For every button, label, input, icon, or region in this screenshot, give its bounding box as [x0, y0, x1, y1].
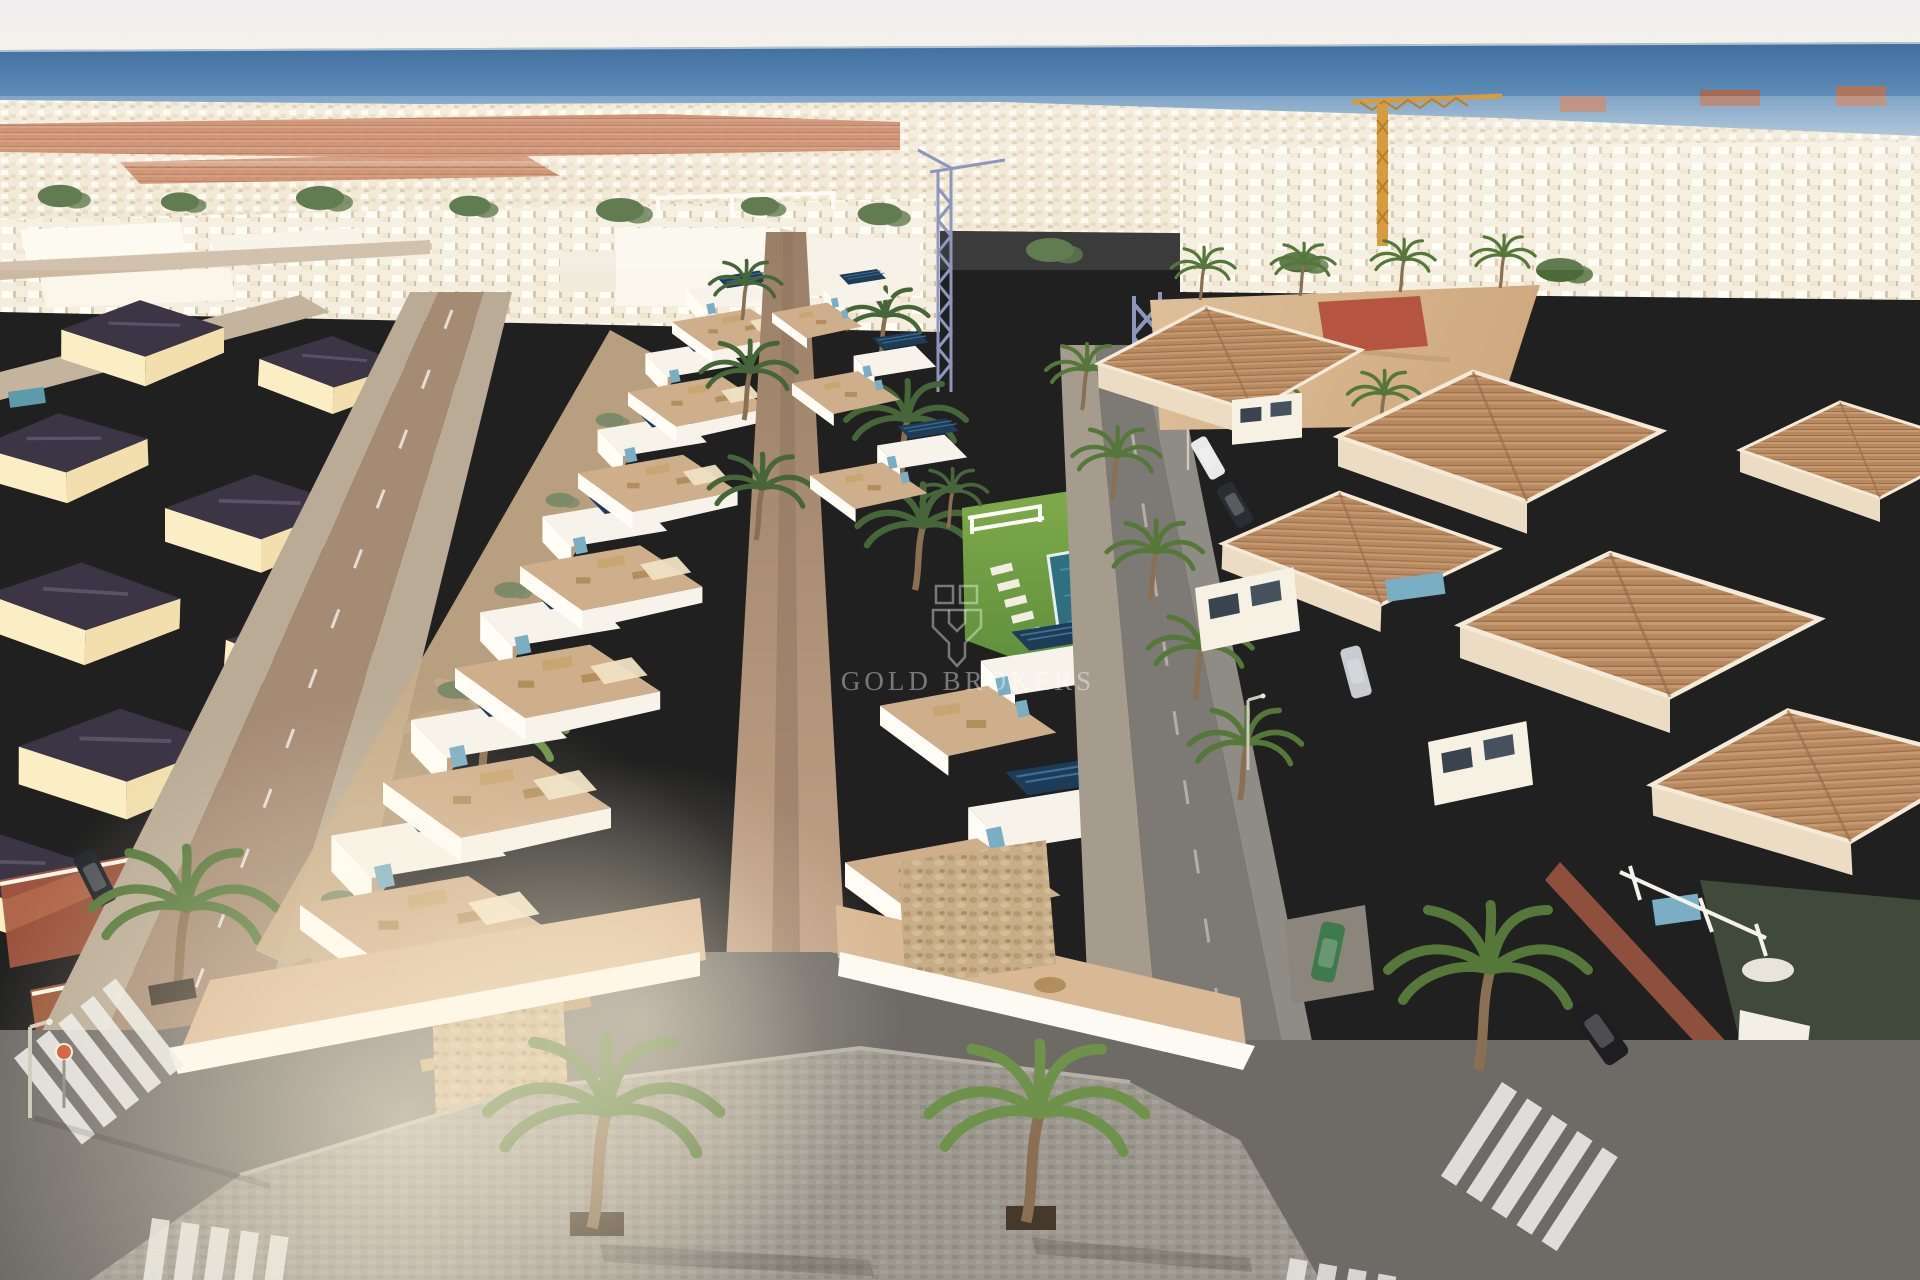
stone-clad-wall [898, 840, 1056, 988]
sun-flare [380, 760, 900, 1280]
watermark-text: GOLD BROKERS [841, 666, 1095, 696]
scene: GOLD BROKERS [0, 0, 1920, 1280]
haze [0, 96, 1920, 166]
haze [0, 160, 1920, 270]
garden-furniture [1742, 958, 1794, 982]
distant-town [0, 86, 1920, 459]
driving-car [1339, 645, 1372, 700]
foreground [0, 690, 1920, 1280]
aerial-render-of-coastal-villa-development: GOLD BROKERS [0, 0, 1920, 1280]
parked-car [1215, 480, 1254, 529]
